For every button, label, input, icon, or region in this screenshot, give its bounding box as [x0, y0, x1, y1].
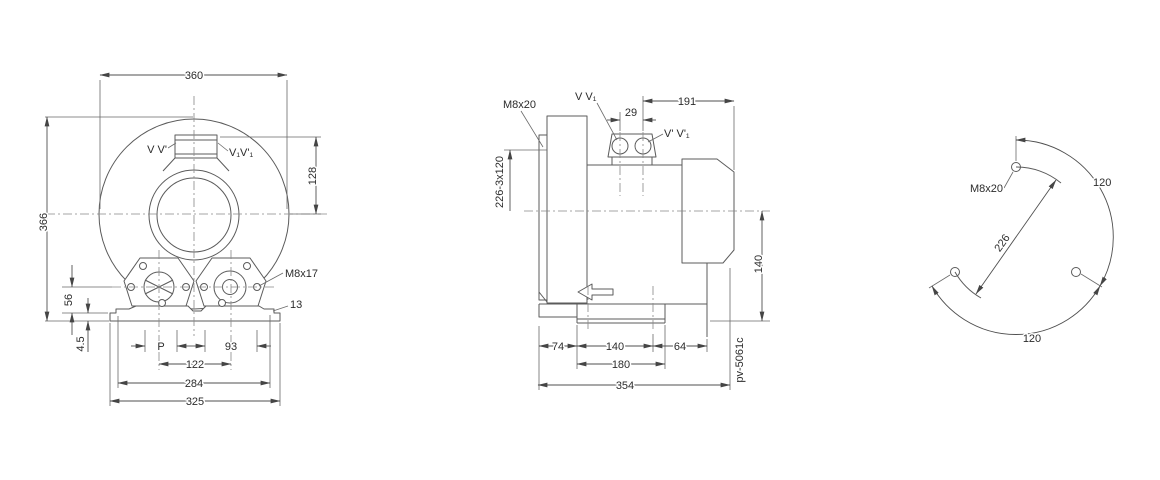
housing-cover [547, 116, 587, 303]
bolt-hole-ticks [929, 136, 1102, 288]
label-step-13: 13 [290, 299, 302, 311]
cover-flange-strip [539, 135, 547, 300]
dim-bolt-diameter: 226 [992, 232, 1012, 254]
port-label-vv1: V V₁ [575, 91, 597, 103]
drawing-code: pv-5061c [734, 337, 746, 383]
dim-motor-length: 191 [678, 96, 696, 108]
label-thread-m8x20-bolt: M8x20 [970, 183, 1003, 195]
dim-flange-height: 56 [63, 294, 75, 306]
right-port-flange [196, 258, 266, 307]
dim-angle-right: 120 [1093, 177, 1111, 189]
angle-arc-right [1016, 140, 1113, 286]
dim-flange-right: 93 [225, 341, 237, 353]
dim-total-length: 354 [616, 380, 634, 392]
label-thread-m8x20: M8x20 [503, 99, 536, 111]
side-port-block [608, 134, 656, 165]
dim-angle-bottom: 120 [1023, 333, 1041, 345]
technical-drawing-page: 360 366 128 56 4.5 P 93 122 [0, 0, 1160, 480]
dim-foot-right: 64 [674, 341, 686, 353]
dim-base-thickness: 4.5 [75, 336, 87, 351]
side-view: M8x20 226-3x120 29 191 V V₁ V' V'₁ 140 7… [494, 91, 770, 392]
dim-foot-width: 180 [612, 359, 630, 371]
angle-arc-bottom [932, 286, 1100, 334]
port-label-v1v1: V₁V'₁ [229, 147, 253, 159]
dim-port-spacing: 29 [625, 107, 637, 119]
dim-base-width: 325 [186, 396, 204, 408]
bolt-pattern-view: 226 120 120 M8x20 [929, 136, 1113, 345]
dim-width: 360 [185, 70, 203, 82]
top-port [175, 135, 217, 158]
dim-flange-spacing: 122 [186, 359, 204, 371]
bolt-circle-diameter-line [976, 180, 1056, 294]
front-view: 360 366 128 56 4.5 P 93 122 [38, 70, 330, 408]
dim-port-height: 128 [307, 167, 319, 185]
dim-height: 366 [38, 213, 50, 231]
port-label-vv: V V' [147, 144, 167, 156]
label-thread-m8x17: M8x17 [285, 268, 318, 280]
port-label-vpv1: V' V'₁ [664, 128, 690, 140]
dim-foot-left: 74 [552, 341, 564, 353]
dim-center-height: 140 [753, 255, 765, 273]
blower-dimension-drawing: 360 366 128 56 4.5 P 93 122 [0, 0, 1160, 480]
bolt-hole-right [1072, 268, 1081, 277]
dim-bolt-circle: 226-3x120 [494, 156, 506, 208]
dim-foot-span: 140 [606, 341, 624, 353]
dim-port-p: P [157, 341, 164, 353]
dim-hole-span: 284 [185, 378, 203, 390]
left-port-flange [124, 258, 194, 307]
side-base [539, 304, 707, 337]
